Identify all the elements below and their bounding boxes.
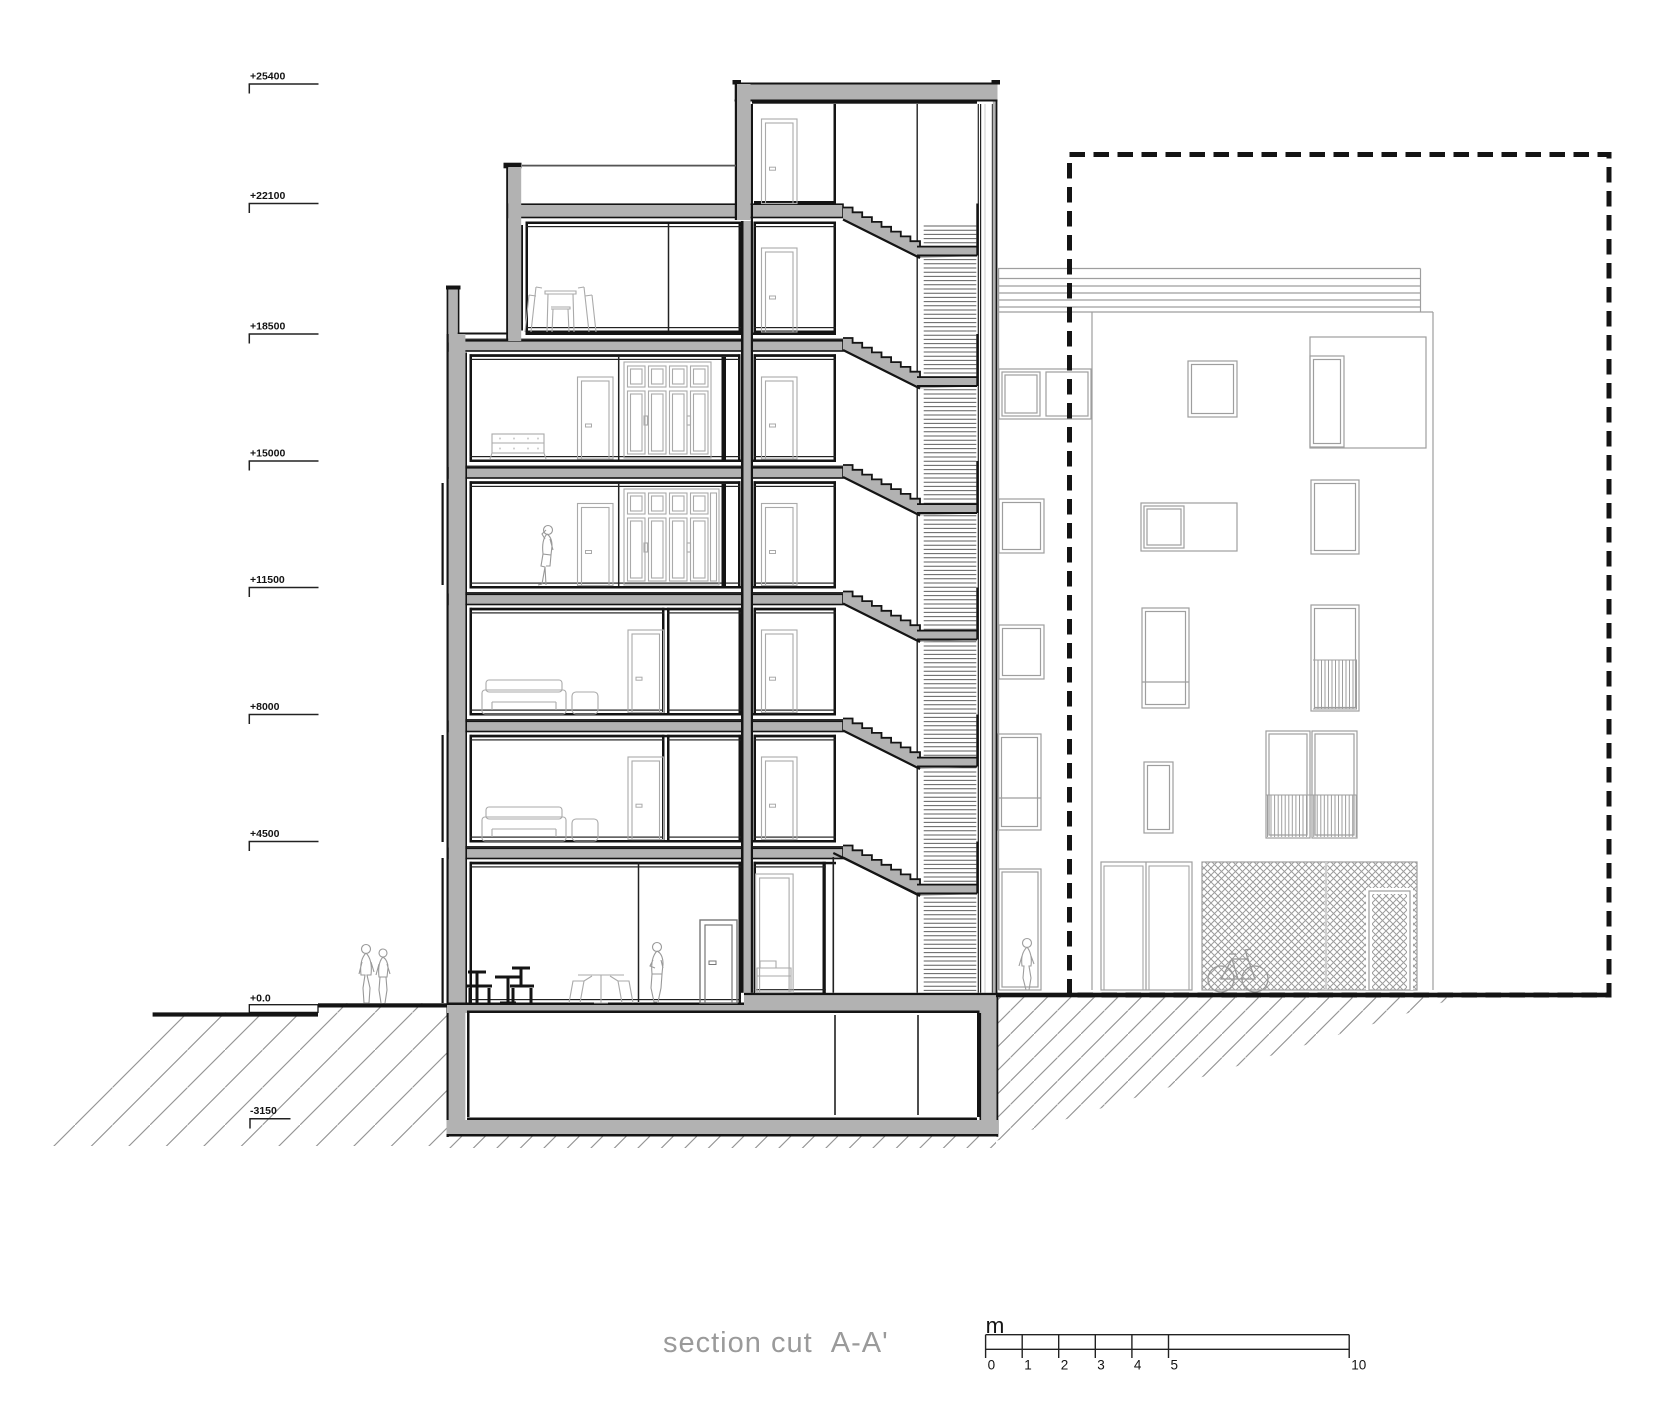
svg-text:+0.0: +0.0 <box>250 993 271 1005</box>
svg-text:0: 0 <box>988 1358 996 1373</box>
svg-text:+18500: +18500 <box>250 321 285 333</box>
svg-text:3: 3 <box>1097 1358 1105 1373</box>
svg-text:+11500: +11500 <box>250 574 285 586</box>
svg-text:-3150: -3150 <box>250 1105 277 1117</box>
svg-text:+15000: +15000 <box>250 448 285 460</box>
svg-text:+8000: +8000 <box>250 701 280 713</box>
svg-text:1: 1 <box>1024 1358 1032 1373</box>
svg-text:section cut A-A': section cut A-A' <box>663 1327 889 1359</box>
svg-text:10: 10 <box>1351 1358 1366 1373</box>
svg-text:2: 2 <box>1061 1358 1069 1373</box>
svg-text:+4500: +4500 <box>250 828 280 840</box>
svg-text:+25400: +25400 <box>250 71 285 83</box>
svg-text:4: 4 <box>1134 1358 1142 1373</box>
svg-text:+22100: +22100 <box>250 190 285 202</box>
svg-text:5: 5 <box>1171 1358 1179 1373</box>
